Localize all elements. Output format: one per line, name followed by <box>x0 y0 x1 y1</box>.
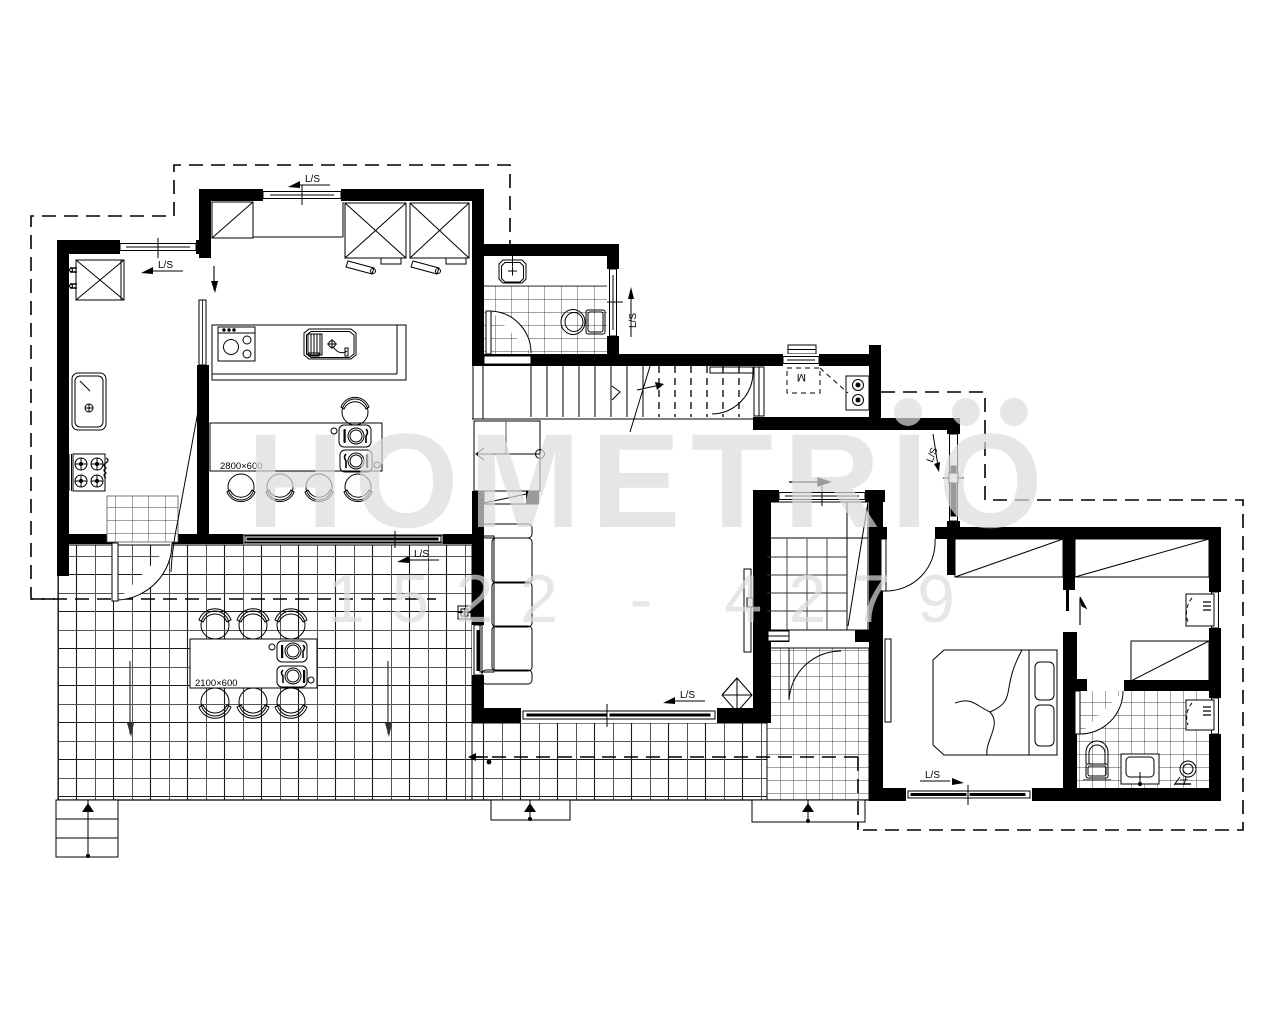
svg-text:L/S: L/S <box>628 313 639 328</box>
svg-text:HOMETRIO: HOMETRIO <box>247 407 1053 556</box>
svg-text:L/S: L/S <box>925 770 940 781</box>
svg-text:L/S: L/S <box>305 174 320 185</box>
svg-text:L/S: L/S <box>680 690 695 701</box>
svg-text:M: M <box>797 371 806 383</box>
svg-text:L/S: L/S <box>158 260 173 271</box>
svg-text:1522 - 4279: 1522 - 4279 <box>327 561 981 637</box>
svg-text:2100×600: 2100×600 <box>195 678 238 689</box>
